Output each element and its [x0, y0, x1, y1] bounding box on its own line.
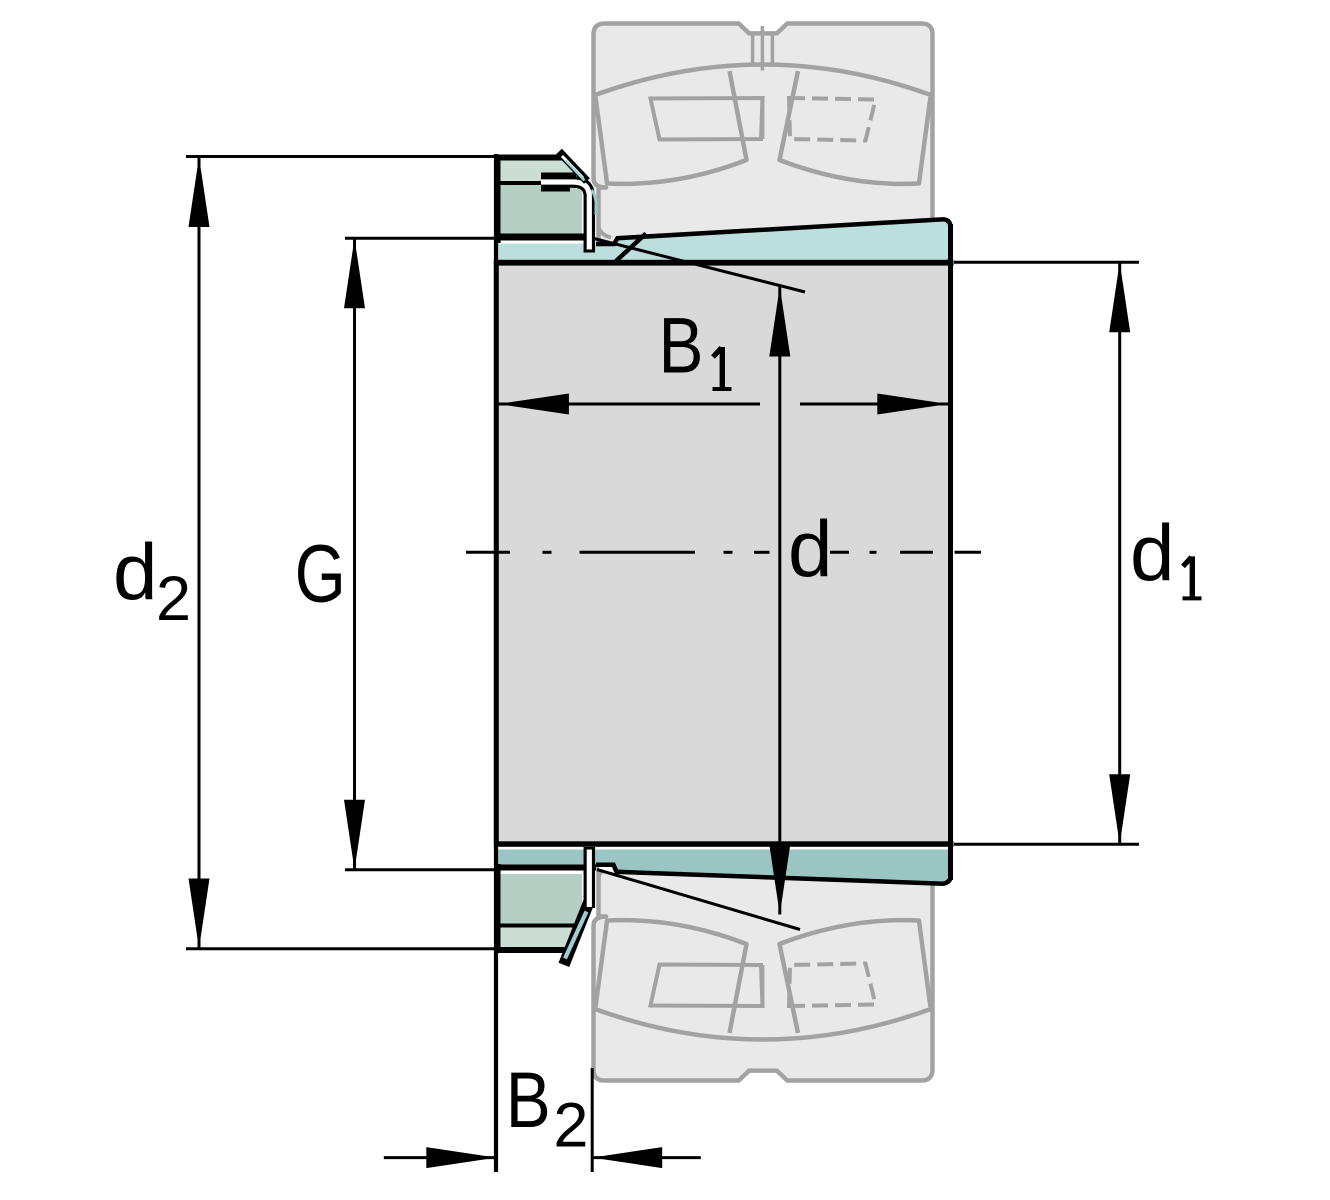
svg-text:d: d	[113, 528, 158, 617]
svg-text:B: B	[506, 1055, 551, 1144]
svg-text:d: d	[1130, 509, 1175, 598]
svg-text:B: B	[659, 301, 704, 390]
svg-text:2: 2	[553, 1091, 588, 1161]
svg-text:d: d	[788, 504, 833, 593]
svg-text:2: 2	[156, 564, 191, 634]
svg-text:G: G	[295, 528, 346, 619]
